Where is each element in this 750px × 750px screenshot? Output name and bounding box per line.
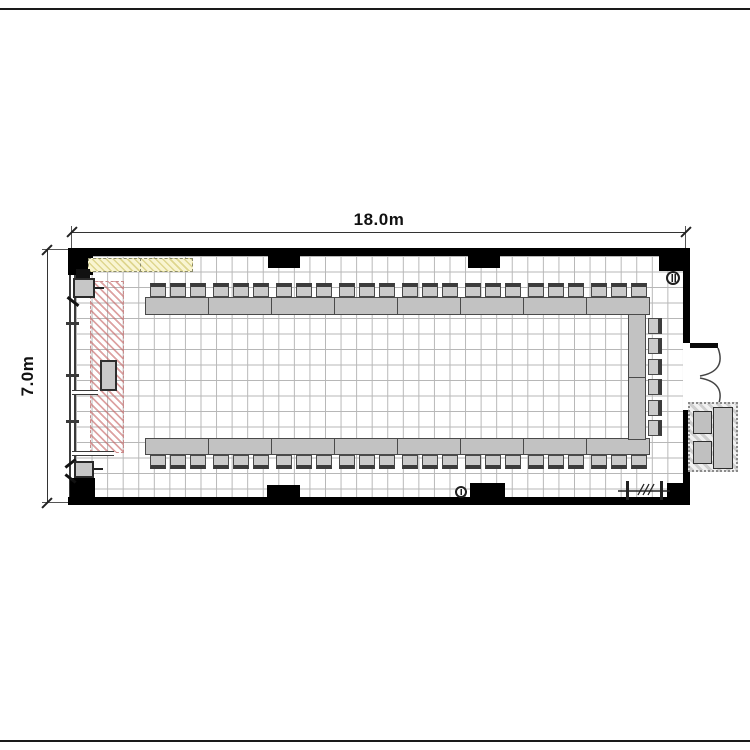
chair — [442, 455, 458, 469]
chair — [339, 283, 355, 297]
chair — [505, 283, 521, 297]
chair — [296, 283, 312, 297]
chair — [631, 455, 647, 469]
chair — [213, 455, 229, 469]
page-border-bottom — [0, 740, 750, 742]
chair — [505, 455, 521, 469]
chair — [591, 455, 607, 469]
chair — [611, 283, 627, 297]
pillar-bottom-2 — [470, 483, 505, 498]
av-equipment-cart-icon — [73, 278, 95, 298]
chair — [150, 283, 166, 297]
height-dimension-label: 7.0m — [18, 351, 38, 401]
table-segment — [334, 438, 398, 455]
chair — [648, 338, 662, 354]
operator-desk-icon — [74, 461, 94, 478]
chair — [296, 455, 312, 469]
wall-top — [68, 248, 690, 256]
chair — [233, 283, 249, 297]
chair — [253, 455, 269, 469]
chair — [316, 283, 332, 297]
table-segment — [460, 438, 524, 455]
dimension-line-left — [47, 250, 48, 503]
av-equipment-icon — [76, 269, 90, 278]
pillar-top-2 — [468, 256, 500, 268]
cabinet-stool — [693, 411, 712, 434]
chair — [422, 455, 438, 469]
chair — [591, 283, 607, 297]
table-segment — [271, 297, 335, 315]
table-segment — [145, 438, 209, 455]
partition-symbol — [618, 478, 674, 502]
cabinet-stool — [693, 441, 712, 464]
chair — [422, 283, 438, 297]
chair — [402, 283, 418, 297]
chair — [631, 283, 647, 297]
window-sill — [72, 451, 114, 456]
chair — [648, 420, 662, 436]
fire-extinguisher-glyph — [670, 274, 676, 282]
table-segment — [208, 438, 272, 455]
chair — [379, 455, 395, 469]
fire-extinguisher-icon — [666, 271, 680, 285]
fire-extinguisher-glyph — [459, 489, 463, 495]
chair — [648, 379, 662, 395]
chair — [548, 455, 564, 469]
window-mullion — [66, 420, 79, 423]
table-segment — [271, 438, 335, 455]
chair — [648, 359, 662, 375]
chair — [379, 283, 395, 297]
chair — [528, 283, 544, 297]
table-segment — [397, 297, 461, 315]
chair — [485, 283, 501, 297]
wall-bottom — [68, 497, 690, 505]
table-segment — [586, 297, 650, 315]
window-mullion — [66, 322, 79, 325]
chair — [316, 455, 332, 469]
table-segment — [460, 297, 524, 315]
chair — [528, 455, 544, 469]
table-segment — [586, 438, 650, 455]
page-border-top — [0, 8, 750, 10]
table-segment — [397, 438, 461, 455]
chair — [170, 455, 186, 469]
dimension-line-top — [72, 232, 686, 233]
chair — [648, 318, 662, 334]
window-sill — [72, 390, 98, 395]
chair — [253, 283, 269, 297]
top-table-row — [146, 297, 650, 315]
bottom-table-row — [146, 438, 650, 455]
chair — [548, 283, 564, 297]
chair — [465, 455, 481, 469]
entrance-cabinet — [688, 402, 738, 472]
desk-stub — [94, 468, 103, 470]
pillar-top-1 — [268, 256, 300, 268]
table-segment — [628, 377, 646, 441]
fire-extinguisher-icon — [455, 486, 467, 498]
table-segment — [145, 297, 209, 315]
table-segment — [523, 438, 587, 455]
chair — [465, 283, 481, 297]
chair — [233, 455, 249, 469]
chair — [485, 455, 501, 469]
floor-plan: 18.0m 7.0m — [0, 0, 750, 750]
av-equipment-stub — [95, 287, 104, 289]
speaker-podium — [100, 360, 117, 391]
table-segment — [523, 297, 587, 315]
pillar-bottom-1 — [267, 485, 300, 498]
chair — [568, 283, 584, 297]
chair — [359, 283, 375, 297]
chair — [568, 455, 584, 469]
chair — [648, 400, 662, 416]
chair — [190, 455, 206, 469]
chair — [402, 455, 418, 469]
corner-pillar-top-right — [659, 248, 690, 271]
chair — [442, 283, 458, 297]
width-dimension-label: 18.0m — [339, 210, 419, 230]
chair — [339, 455, 355, 469]
table-segment — [628, 314, 646, 378]
chair — [213, 283, 229, 297]
chair — [190, 283, 206, 297]
whiteboard-strip-divider — [140, 258, 141, 272]
chair — [170, 283, 186, 297]
chair — [611, 455, 627, 469]
cabinet-rack — [713, 407, 733, 469]
chair — [359, 455, 375, 469]
table-segment — [208, 297, 272, 315]
chair — [276, 283, 292, 297]
chair — [150, 455, 166, 469]
table-segment — [334, 297, 398, 315]
window-mullion — [66, 374, 79, 377]
chair — [276, 455, 292, 469]
right-table-column — [628, 315, 646, 440]
